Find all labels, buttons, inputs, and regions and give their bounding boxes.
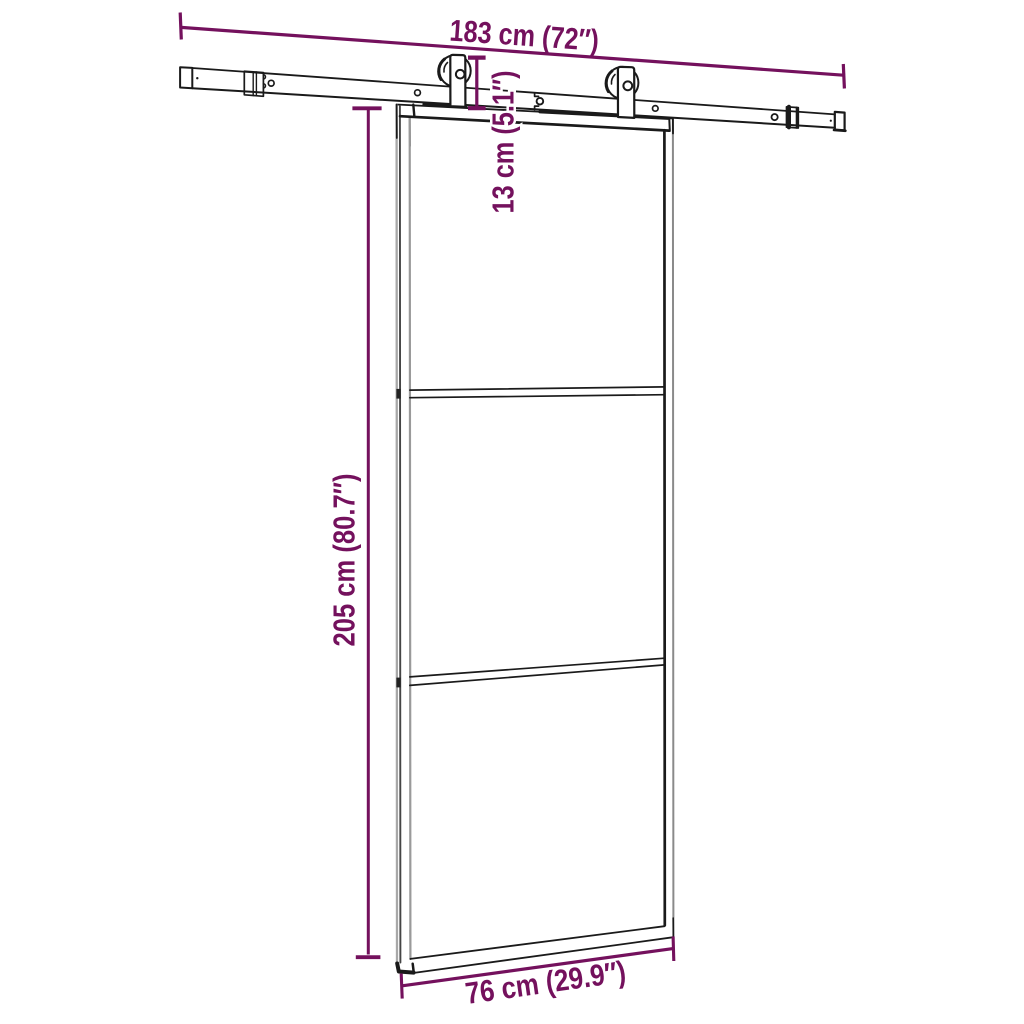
svg-text:205 cm (80.7″): 205 cm (80.7″) bbox=[328, 474, 362, 647]
svg-text:13 cm (5.1″): 13 cm (5.1″) bbox=[487, 71, 521, 214]
